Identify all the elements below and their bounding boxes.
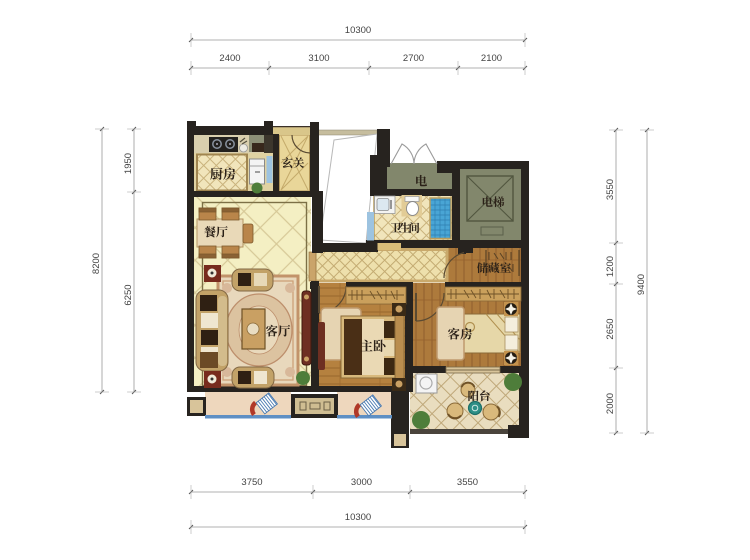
svg-text:9400: 9400 bbox=[636, 274, 647, 295]
svg-text:8200: 8200 bbox=[91, 253, 102, 274]
svg-text:2650: 2650 bbox=[605, 318, 616, 339]
svg-text:10300: 10300 bbox=[345, 512, 371, 523]
svg-text:3100: 3100 bbox=[308, 53, 329, 64]
svg-text:3000: 3000 bbox=[351, 477, 372, 488]
svg-text:1200: 1200 bbox=[605, 256, 616, 277]
svg-text:10300: 10300 bbox=[345, 25, 371, 36]
svg-text:3750: 3750 bbox=[241, 477, 262, 488]
svg-text:2100: 2100 bbox=[481, 53, 502, 64]
svg-text:2400: 2400 bbox=[219, 53, 240, 64]
svg-text:3550: 3550 bbox=[457, 477, 478, 488]
svg-text:1950: 1950 bbox=[123, 153, 134, 174]
svg-text:3550: 3550 bbox=[605, 179, 616, 200]
svg-text:2700: 2700 bbox=[403, 53, 424, 64]
svg-text:2000: 2000 bbox=[605, 393, 616, 414]
svg-text:6250: 6250 bbox=[123, 284, 134, 305]
